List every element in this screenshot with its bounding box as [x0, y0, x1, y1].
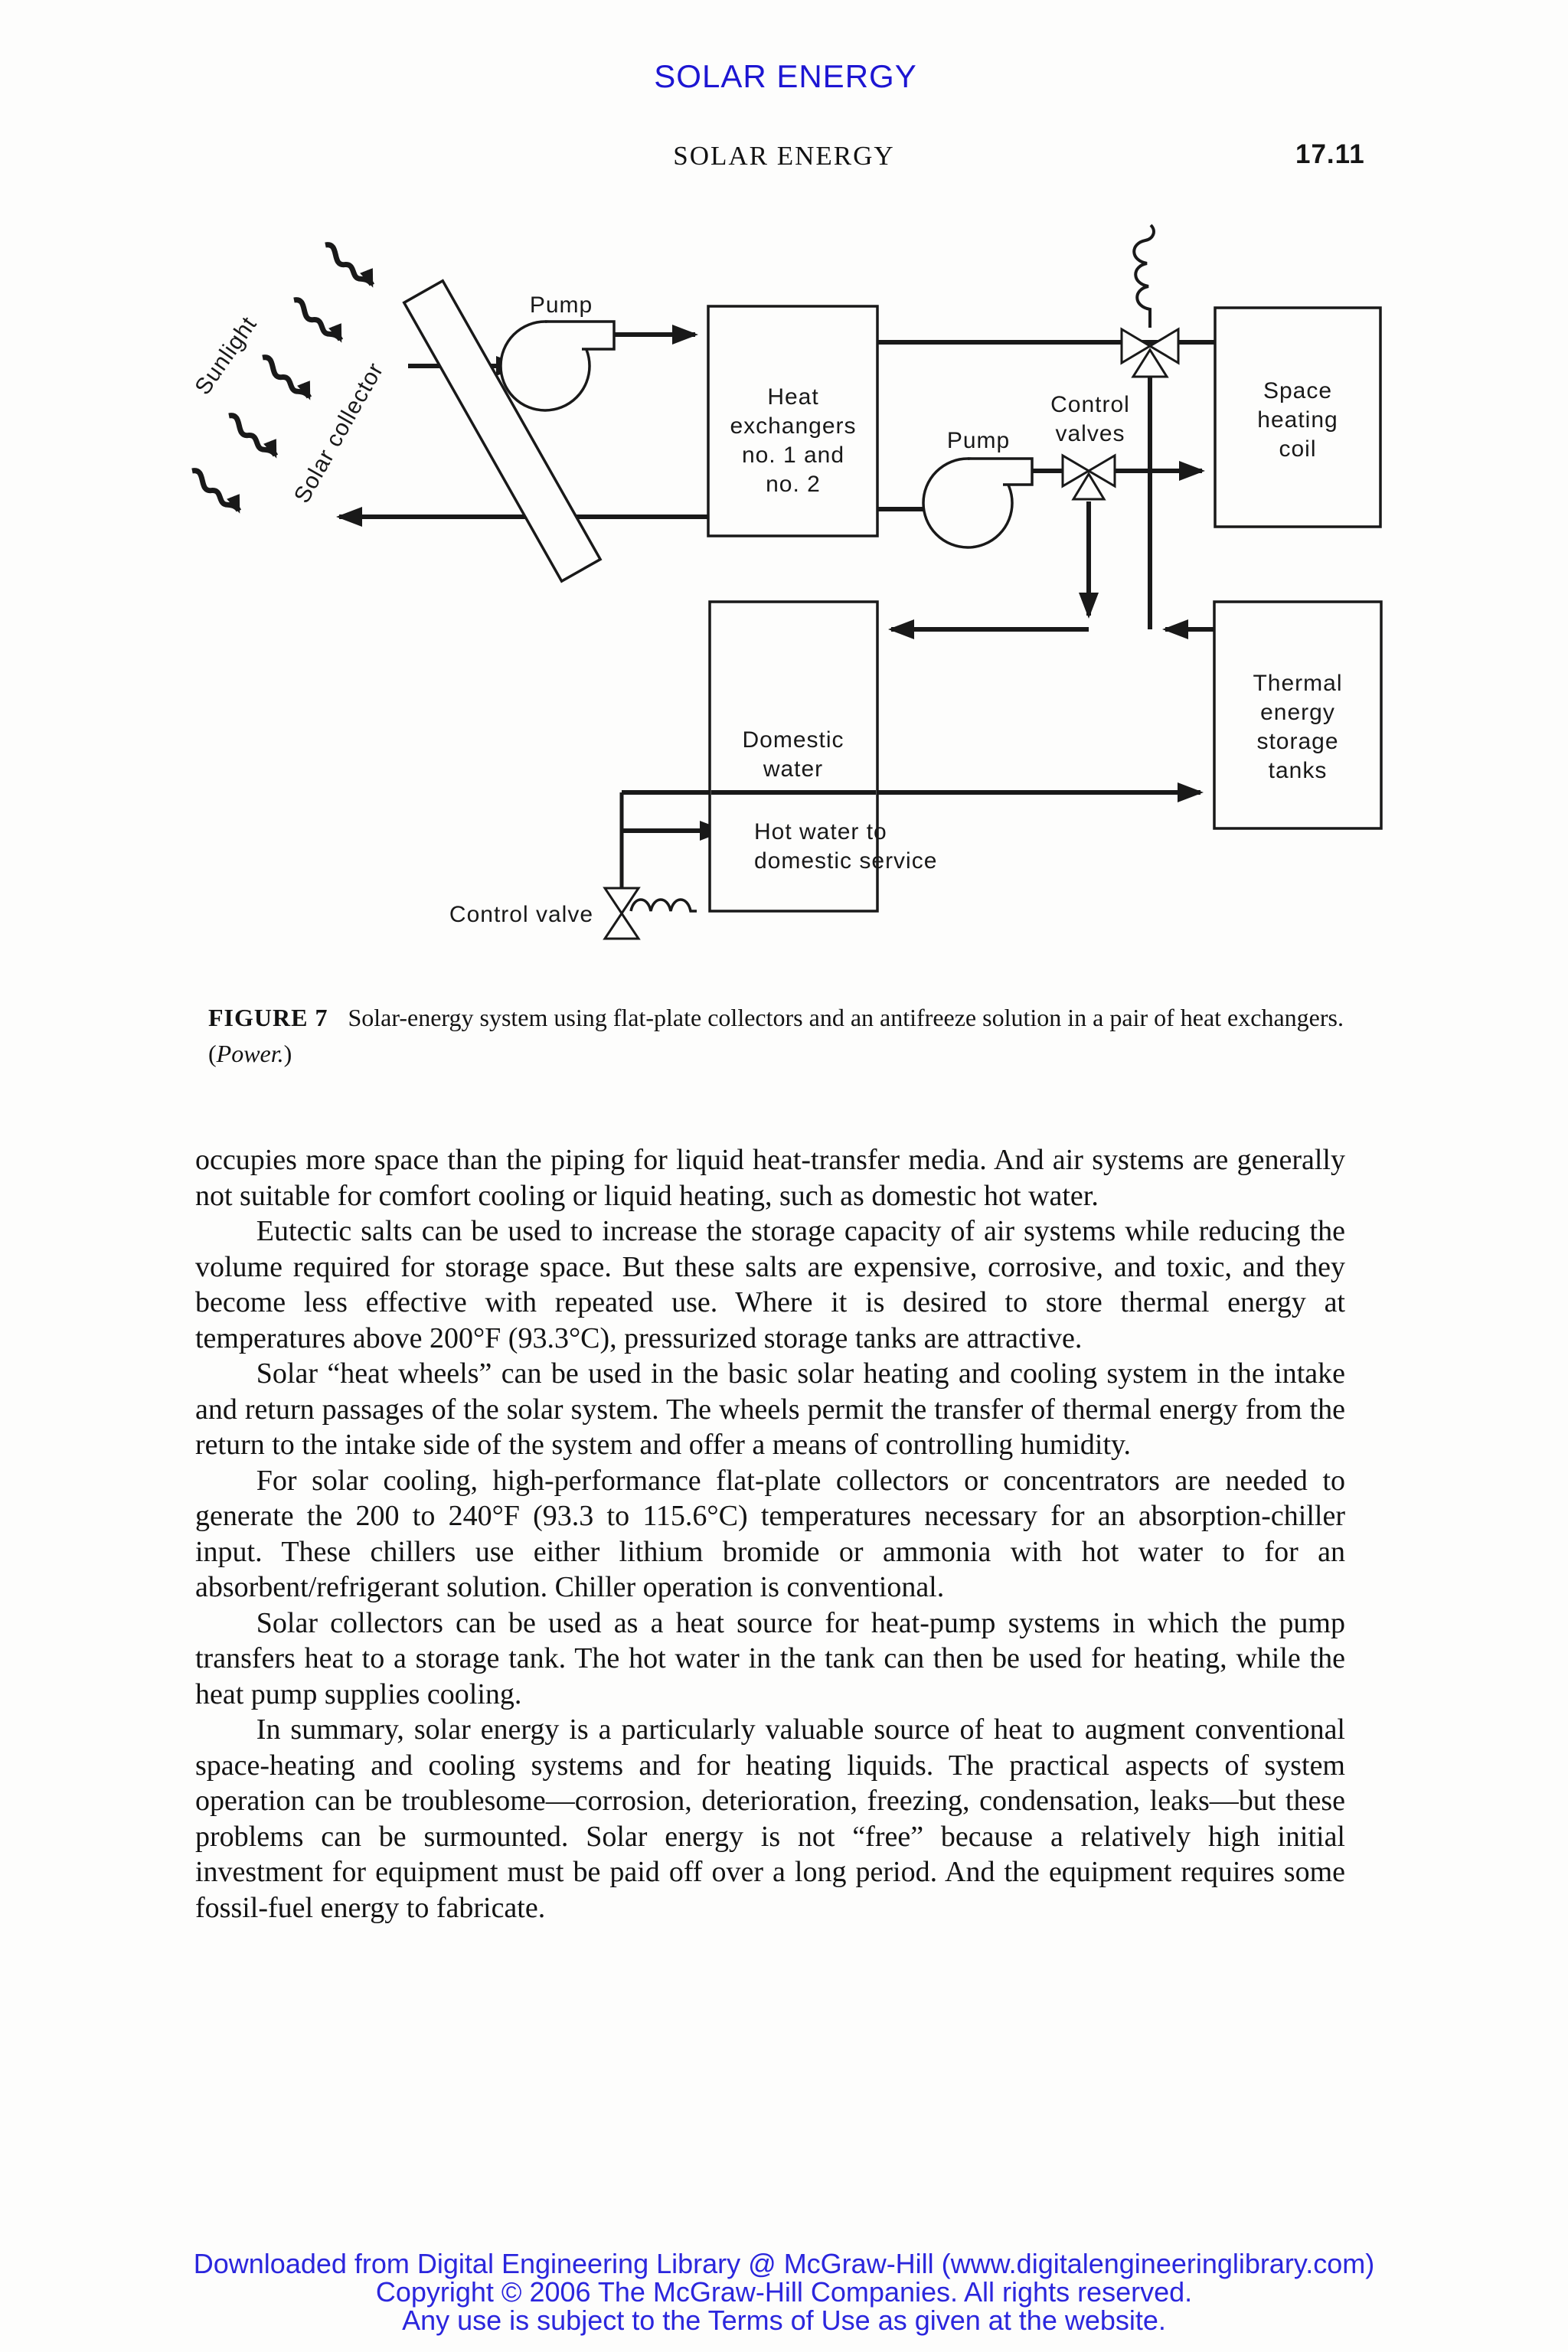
body-paragraph: In summary, solar energy is a particular… — [195, 1712, 1345, 1926]
document-page: SOLAR ENERGY SOLAR ENERGY 17.11 — [0, 0, 1568, 2352]
body-paragraph: occupies more space than the piping for … — [195, 1142, 1345, 1214]
sunlight-ray-icon — [189, 469, 240, 515]
sunlight-ray-icon — [291, 298, 341, 345]
valve-actuator-coil-icon — [631, 900, 697, 911]
hx-label-3: no. 1 and — [742, 443, 844, 468]
sunlight-ray-icon — [226, 413, 276, 460]
figure-caption-source: Power. — [217, 1040, 284, 1067]
hx-label-2: exchangers — [730, 413, 856, 439]
figure-7-diagram: Solar collector Sunlight Pump Pump — [115, 214, 1416, 1011]
space-coil-label-1: Space — [1263, 378, 1332, 403]
figure-caption: FIGURE 7Solar-energy system using flat-p… — [208, 1000, 1357, 1072]
body-paragraph: Solar collectors can be used as a heat s… — [195, 1606, 1345, 1713]
body-text: occupies more space than the piping for … — [195, 1142, 1345, 1926]
hot-water-label-line2: domestic service — [754, 848, 937, 874]
hx-label-4: no. 2 — [766, 472, 821, 497]
hx-label-1: Heat — [767, 384, 818, 410]
three-way-valve1-icon — [1122, 329, 1178, 377]
thermal-storage-label-3: storage — [1256, 729, 1338, 754]
thermal-storage-label-1: Thermal — [1253, 671, 1342, 696]
expansion-coil-icon — [1134, 225, 1154, 328]
control-valves-label-line2: valves — [1055, 421, 1125, 446]
hot-water-label-line1: Hot water to — [754, 819, 887, 844]
figure-caption-suffix: ) — [284, 1040, 292, 1067]
space-coil-label-2: heating — [1257, 407, 1338, 433]
chapter-banner: SOLAR ENERGY — [2, 58, 1568, 95]
domestic-water-label-1: Domestic — [742, 727, 844, 753]
solar-collector-label: Solar collector — [289, 358, 389, 508]
download-notice: Downloaded from Digital Engineering Libr… — [0, 2249, 1568, 2334]
page-number: 17.11 — [1295, 139, 1365, 170]
control-valve-icon — [605, 888, 639, 939]
body-paragraph: Solar “heat wheels” can be used in the b… — [195, 1356, 1345, 1463]
control-valve-label: Control valve — [449, 902, 593, 927]
space-coil-label-3: coil — [1279, 436, 1316, 462]
sunlight-label: Sunlight — [190, 312, 262, 399]
sunlight-ray-icon — [260, 355, 310, 402]
three-way-valve2-icon — [1063, 456, 1115, 499]
sunlight-ray-icon — [322, 243, 373, 289]
body-paragraph: For solar cooling, high-performance flat… — [195, 1463, 1345, 1606]
pump1-label: Pump — [530, 292, 593, 318]
footer-line-terms: Any use is subject to the Terms of Use a… — [0, 2306, 1568, 2334]
footer-line-source: Downloaded from Digital Engineering Libr… — [0, 2249, 1568, 2278]
control-valves-label-line1: Control — [1050, 392, 1130, 417]
domestic-water-label-2: water — [763, 756, 823, 782]
body-paragraph: Eutectic salts can be used to increase t… — [195, 1214, 1345, 1356]
pump1-icon — [501, 322, 614, 410]
thermal-storage-label-2: energy — [1260, 700, 1335, 725]
solar-system-schematic: Solar collector Sunlight Pump Pump — [115, 214, 1416, 1011]
pump2-label: Pump — [947, 428, 1010, 453]
thermal-storage-label-4: tanks — [1269, 758, 1328, 783]
footer-line-copyright: Copyright © 2006 The McGraw-Hill Compani… — [0, 2278, 1568, 2306]
pump2-icon — [923, 459, 1032, 547]
figure-caption-text: Solar-energy system using flat-plate col… — [208, 1004, 1344, 1067]
figure-caption-label: FIGURE 7 — [208, 1004, 328, 1031]
